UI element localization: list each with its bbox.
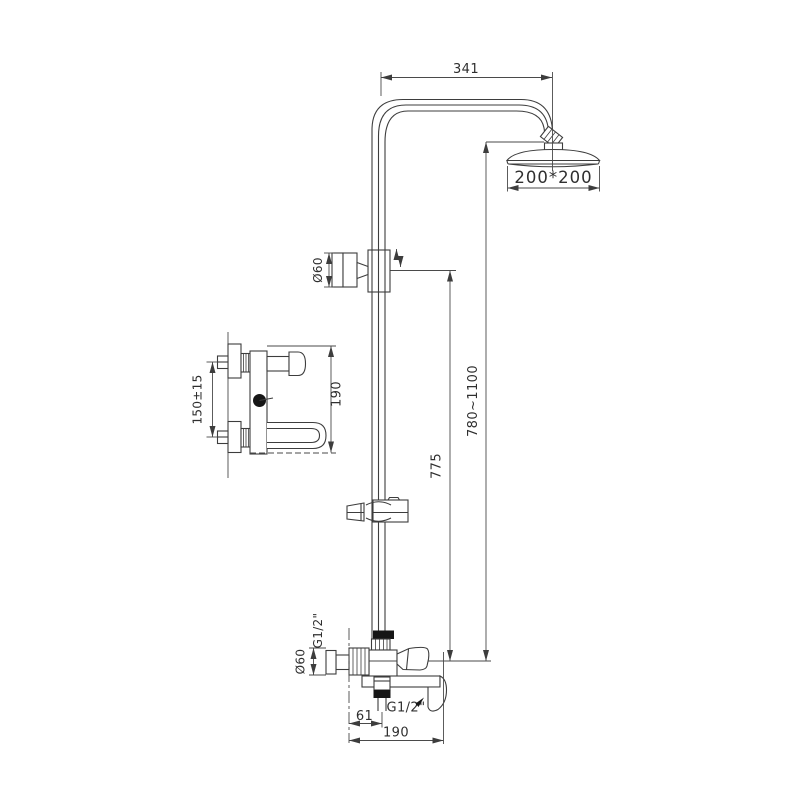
technical-drawing-canvas: 341 200*200 780~1100 775 Ø60 (0, 0, 800, 800)
slider-holder (347, 498, 408, 523)
knob-hatched-nut (349, 648, 369, 675)
dim-label-spout-reach: 190 (383, 726, 409, 741)
detail-handle-lever (267, 357, 289, 372)
dim-label-outlet-offset: 61 (356, 709, 373, 724)
dim-label-inlet-spacing: 150±15 (191, 374, 205, 424)
detail-handle-cap (289, 352, 306, 376)
dimension-outlet-offset: 61 (349, 709, 382, 728)
dim-label-upper-knob: Ø60 (311, 257, 325, 283)
knob-stem (357, 263, 368, 279)
knob-body (343, 253, 357, 287)
wall-mount-detail: 150±15 190 (191, 332, 345, 478)
dim-label-lower-knob: Ø60 (294, 649, 308, 675)
knob-face (326, 651, 336, 675)
top-wall-plate (228, 344, 241, 378)
diverter-lever (373, 631, 394, 640)
dimension-riser-height: 775 (390, 271, 491, 662)
outlet-black-band (374, 690, 391, 698)
dimension-arm-reach: 341 (381, 62, 553, 96)
dimension-head-size: 200*200 (508, 166, 600, 192)
valve-handle (397, 647, 429, 670)
dimension-inlet-spacing: 150±15 (191, 362, 218, 437)
detail-spout-outer (267, 423, 326, 449)
outlet-tube (378, 698, 386, 711)
valve-body (369, 650, 397, 677)
outlet-connector (374, 677, 390, 690)
dimension-lower-knob-diameter: Ø60 (294, 648, 327, 675)
mixer-valve-body (369, 650, 397, 677)
dim-label-detail-height: 190 (330, 381, 345, 407)
handle-lever (397, 647, 429, 670)
label-outlet-thread-group: G1/2" (387, 698, 426, 716)
lower-knob (326, 648, 369, 675)
bottom-wall-plate (228, 422, 241, 453)
valve-top-nut (372, 639, 391, 650)
dimension-upper-knob-diameter: Ø60 (311, 253, 334, 287)
slide-direction-arrows (397, 249, 401, 267)
knob-face (332, 253, 343, 287)
dimension-height-range: 780~1100 (466, 142, 544, 661)
dim-label-riser-height: 775 (430, 453, 445, 479)
dim-label-head-size: 200*200 (514, 168, 592, 187)
shower-system-drawing: 341 200*200 780~1100 775 Ø60 (0, 0, 800, 800)
dim-label-height-range: 780~1100 (466, 365, 481, 437)
pipe-inner-line (385, 111, 545, 647)
label-upper-thread: G1/2" (311, 613, 325, 649)
head-dome (507, 150, 600, 161)
knob-stem (336, 655, 349, 670)
upper-knob (332, 253, 368, 287)
dim-label-arm-reach: 341 (453, 62, 479, 77)
